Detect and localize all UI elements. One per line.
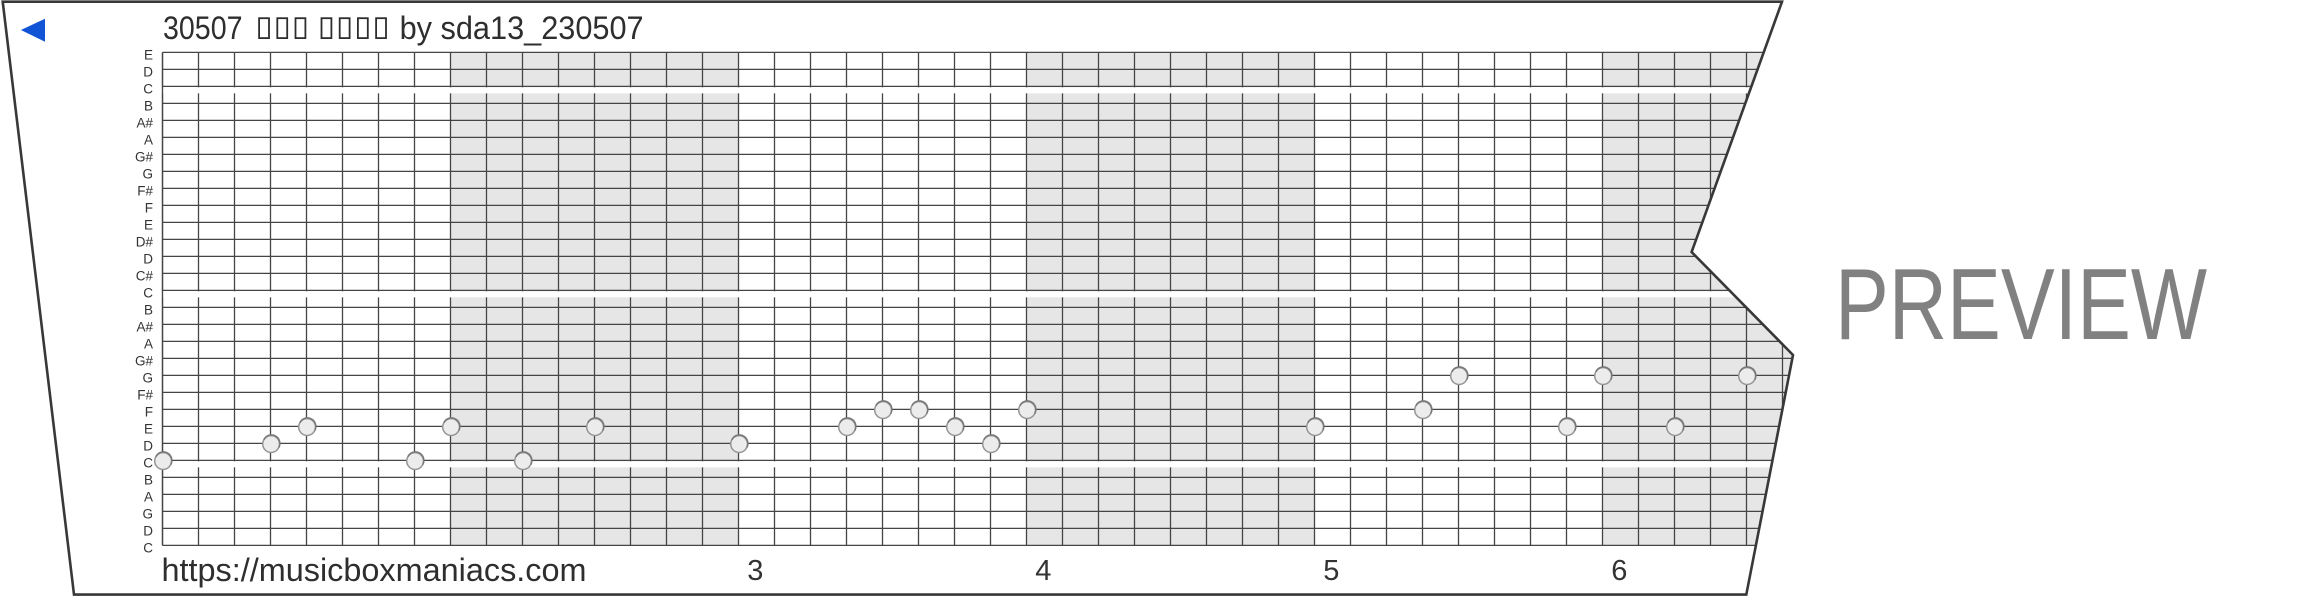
svg-text:A#: A# bbox=[136, 115, 153, 130]
svg-text:A: A bbox=[144, 132, 153, 147]
svg-text:F#: F# bbox=[137, 387, 153, 402]
svg-text:B: B bbox=[144, 302, 153, 317]
svg-text:E: E bbox=[144, 421, 153, 436]
svg-text:D: D bbox=[143, 64, 153, 79]
svg-text:D#: D# bbox=[136, 234, 154, 249]
svg-text:A: A bbox=[144, 489, 153, 504]
svg-text:5: 5 bbox=[1323, 555, 1339, 587]
svg-text:A: A bbox=[144, 336, 153, 351]
svg-text:B: B bbox=[144, 472, 153, 487]
svg-text:F: F bbox=[145, 200, 153, 215]
svg-text:C#: C# bbox=[136, 268, 154, 283]
svg-text:C: C bbox=[143, 540, 153, 555]
svg-text:30507: 30507 bbox=[163, 10, 243, 46]
svg-text:D: D bbox=[143, 438, 153, 453]
svg-text:6: 6 bbox=[1611, 555, 1627, 587]
svg-text:E: E bbox=[144, 47, 153, 62]
svg-text:3: 3 bbox=[747, 555, 763, 587]
svg-text:G: G bbox=[142, 370, 153, 385]
svg-text:G#: G# bbox=[135, 149, 154, 164]
svg-text:A#: A# bbox=[136, 319, 153, 334]
svg-text:by sda13_230507: by sda13_230507 bbox=[400, 10, 644, 46]
svg-text:C: C bbox=[143, 455, 153, 470]
svg-text:F: F bbox=[145, 404, 153, 419]
svg-text:C: C bbox=[143, 81, 153, 96]
svg-text:B: B bbox=[144, 98, 153, 113]
svg-text:D: D bbox=[143, 251, 153, 266]
svg-text:F#: F# bbox=[137, 183, 153, 198]
svg-text:G: G bbox=[142, 506, 153, 521]
svg-text:4: 4 bbox=[1035, 555, 1051, 587]
svg-text:D: D bbox=[143, 523, 153, 538]
svg-text:G#: G# bbox=[135, 353, 154, 368]
svg-text:PREVIEW: PREVIEW bbox=[1835, 249, 2207, 361]
svg-text:C: C bbox=[143, 285, 153, 300]
svg-text:G: G bbox=[142, 166, 153, 181]
svg-text:E: E bbox=[144, 217, 153, 232]
svg-text:https://musicboxmaniacs.com: https://musicboxmaniacs.com bbox=[162, 552, 587, 588]
